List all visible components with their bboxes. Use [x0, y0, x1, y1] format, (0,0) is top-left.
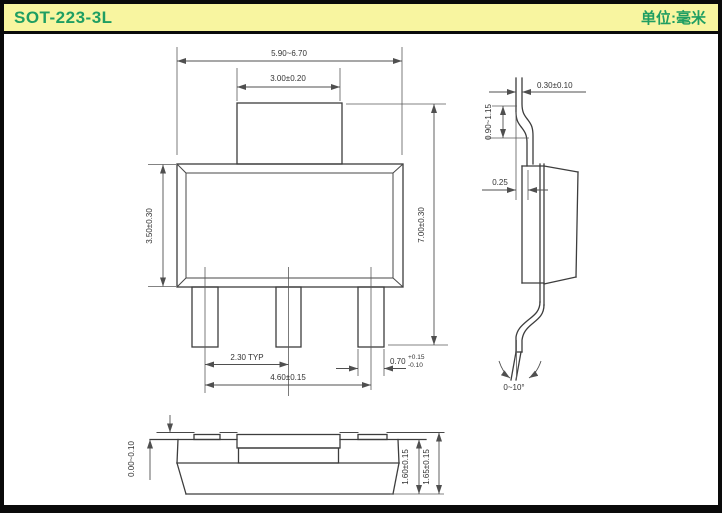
dim-standoff: 0.00~0.10 — [127, 415, 170, 480]
body-inner-outline — [186, 173, 393, 278]
top-view: 5.90~6.70 3.00±0.20 3.50±0.30 7.00±0.30 … — [145, 47, 448, 396]
front-tab-upper — [237, 435, 340, 449]
svg-text:0.00~0.10: 0.00~0.10 — [127, 441, 136, 477]
svg-text:1.60±0.15: 1.60±0.15 — [401, 449, 410, 485]
svg-text:4.60±0.15: 4.60±0.15 — [270, 373, 306, 382]
front-tab-lower — [239, 448, 339, 463]
dim-lead-thickness: 0.30±0.10 — [489, 81, 586, 92]
svg-text:1.65±0.15: 1.65±0.15 — [422, 449, 431, 485]
dim-lead-pitch: 2.30 TYP — [205, 353, 289, 365]
body-corner-chamfers — [177, 164, 403, 287]
dim-body-height: 3.50±0.30 — [145, 165, 176, 287]
front-lead-right — [358, 435, 387, 440]
svg-text:0.70: 0.70 — [390, 357, 406, 366]
svg-text:2.30 TYP: 2.30 TYP — [230, 353, 263, 362]
svg-text:0~10°: 0~10° — [503, 383, 524, 392]
dim-overall-width: 5.90~6.70 — [177, 47, 402, 155]
dim-front-total-height: 1.65±0.15 — [422, 433, 439, 495]
dim-total-height: 7.00±0.30 — [346, 104, 448, 345]
front-lead-left — [194, 435, 220, 440]
svg-text:7.00±0.30: 7.00±0.30 — [417, 207, 426, 243]
dim-tab-width: 3.00±0.20 — [237, 68, 340, 101]
body-outline — [177, 164, 403, 287]
package-drawing-page: { "header": { "title": "SOT-223-3L", "un… — [0, 0, 727, 520]
dim-lead-width: 0.70 +0.15 -0.10 — [336, 349, 425, 376]
svg-text:0.90~1.15: 0.90~1.15 — [484, 104, 493, 140]
bottom-lead-profile — [511, 302, 544, 380]
side-body — [522, 164, 578, 305]
tab-outline — [237, 103, 342, 164]
dim-lead-span: 4.60±0.15 — [205, 373, 371, 385]
svg-text:3.00±0.20: 3.00±0.20 — [270, 74, 306, 83]
svg-text:-0.10: -0.10 — [408, 362, 423, 369]
dim-lead-offset: 0.25 — [482, 178, 548, 190]
dim-foot-angle: 0~10° — [499, 361, 541, 392]
outline-drawing: 5.90~6.70 3.00±0.20 3.50±0.30 7.00±0.30 … — [0, 0, 727, 520]
top-lead-profile — [516, 78, 533, 166]
svg-text:+0.15: +0.15 — [408, 354, 425, 361]
svg-text:5.90~6.70: 5.90~6.70 — [271, 49, 307, 58]
svg-text:3.50±0.30: 3.50±0.30 — [145, 208, 154, 244]
svg-text:0.25: 0.25 — [492, 178, 508, 187]
svg-text:0.30±0.10: 0.30±0.10 — [537, 81, 573, 90]
dim-front-body-height: 1.60±0.15 — [401, 440, 419, 495]
side-view: 0.30±0.10 0.90~1.15 0.25 0~10° — [482, 78, 586, 392]
front-view: 0.00~0.10 1.60±0.15 1.65±0.15 — [127, 415, 444, 494]
